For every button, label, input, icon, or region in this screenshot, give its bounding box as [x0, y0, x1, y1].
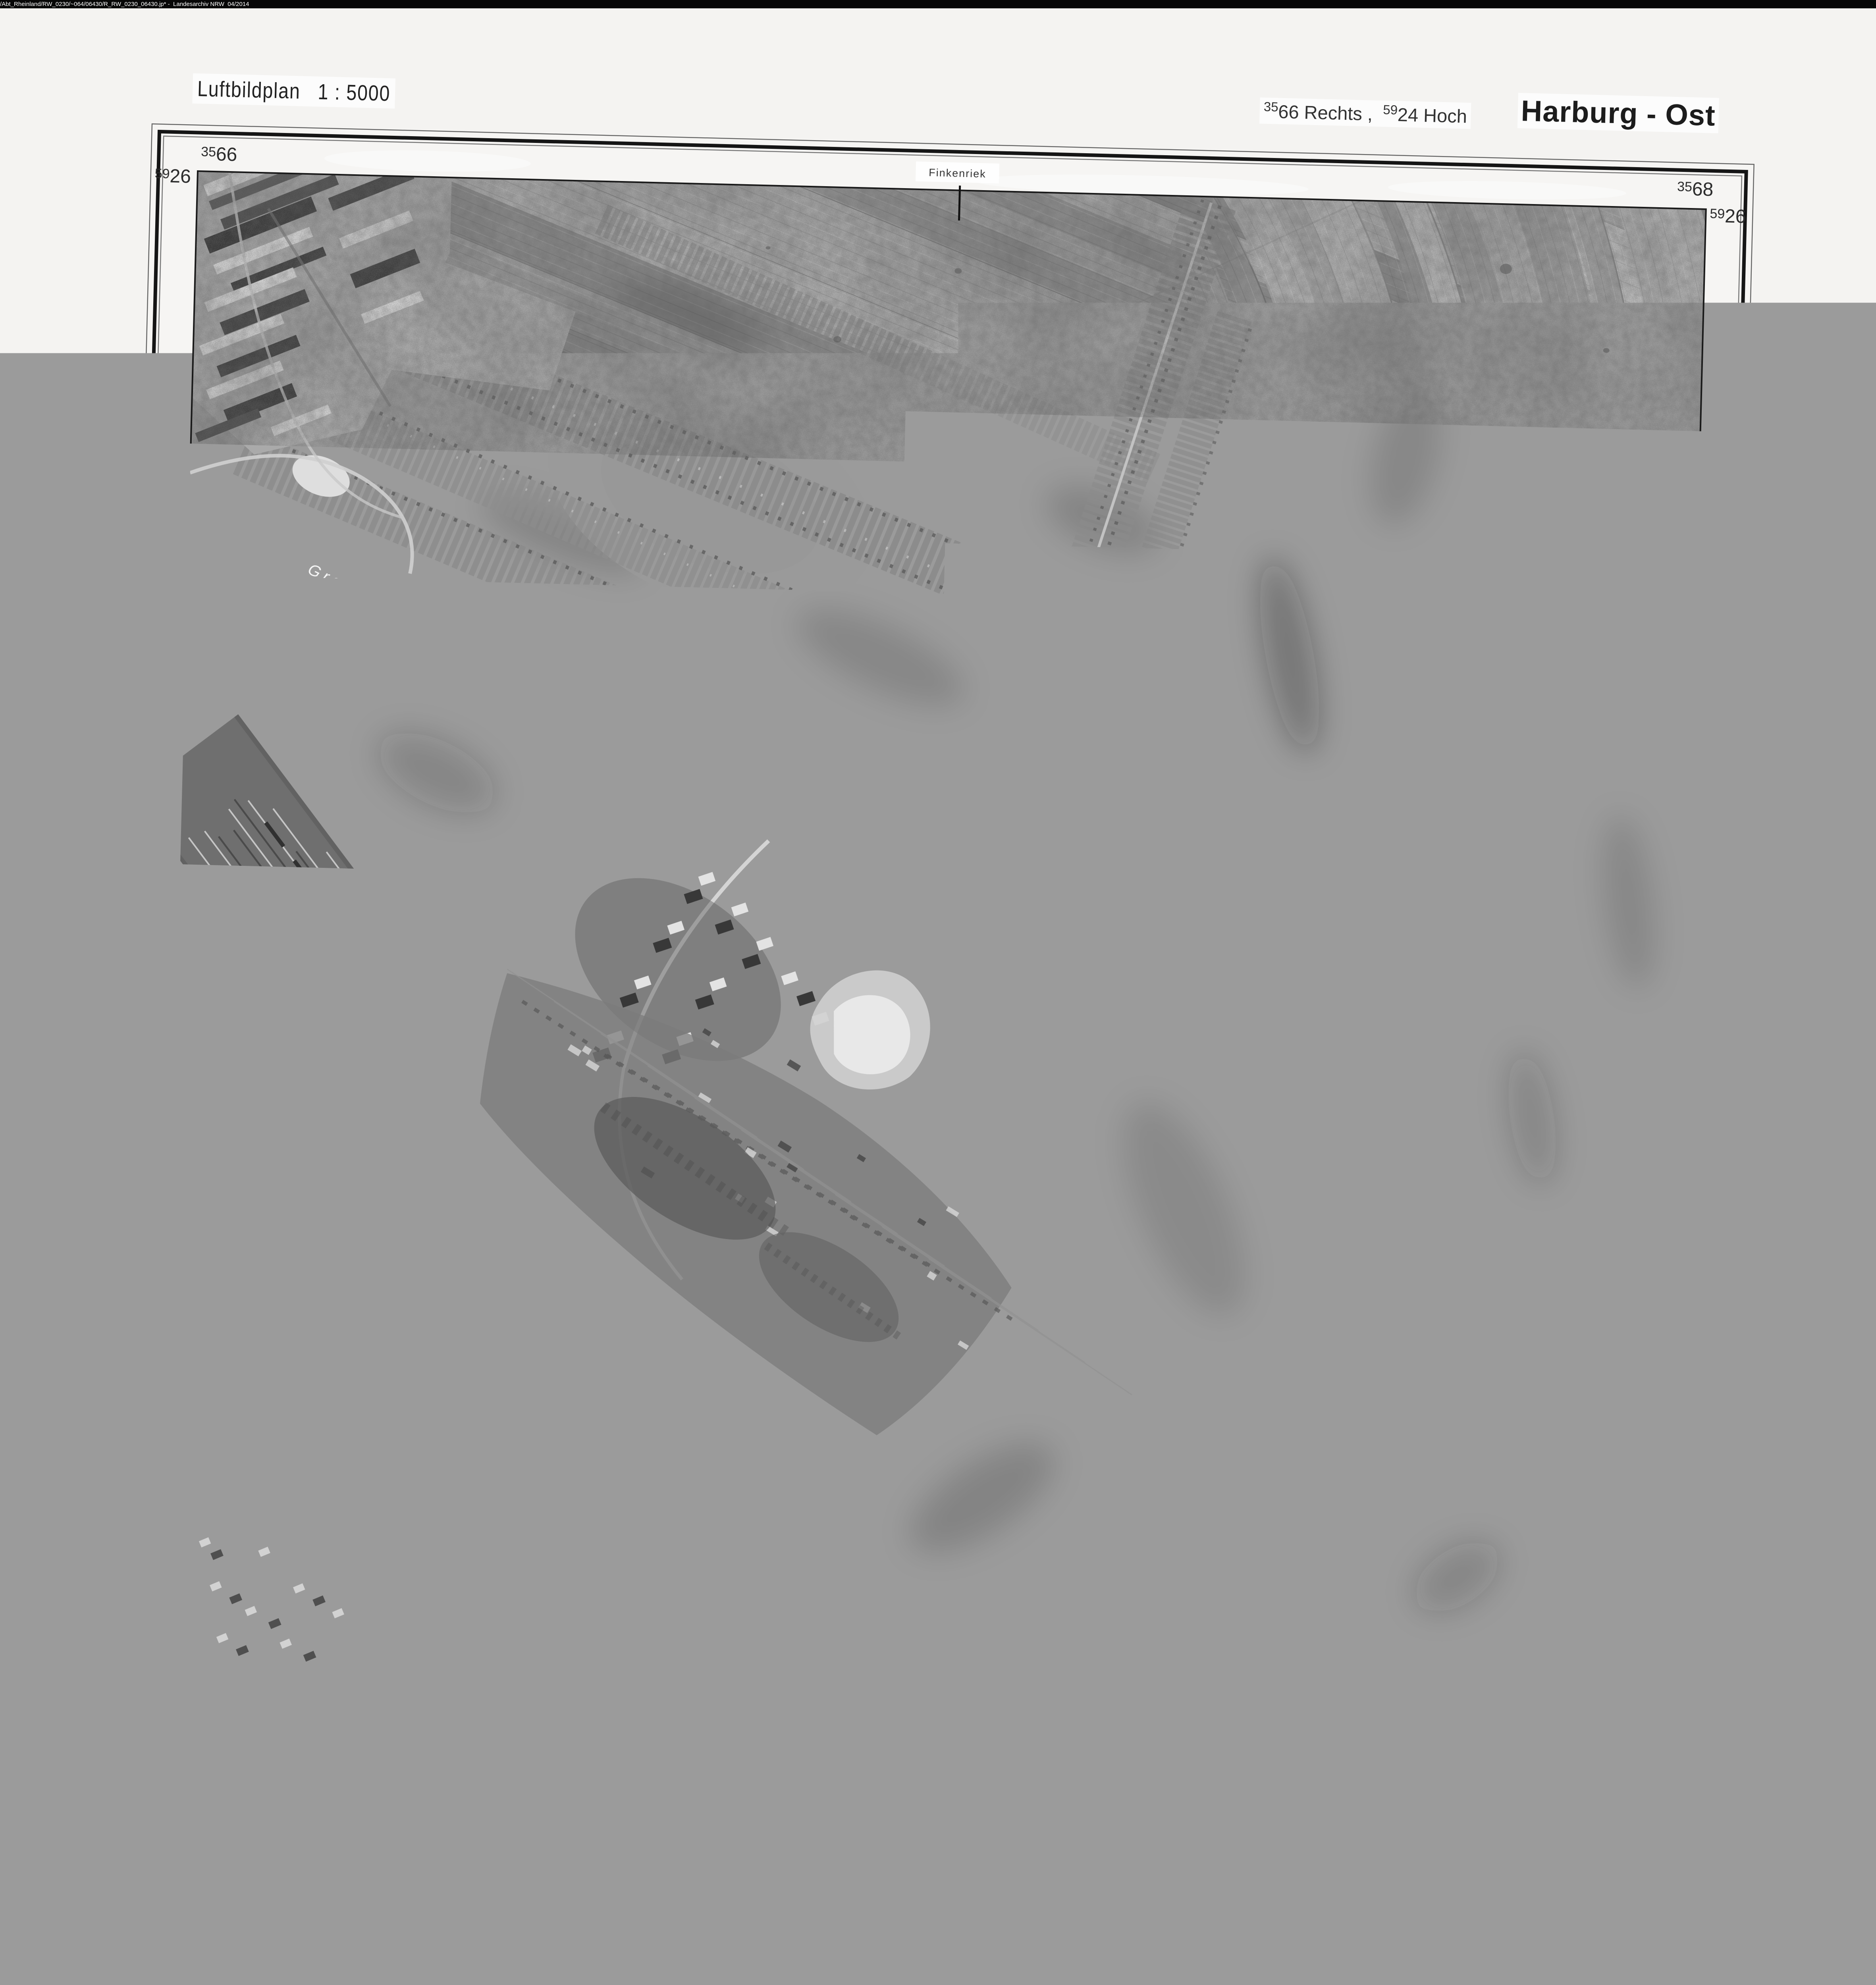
svg-text:5926: 5926: [154, 165, 191, 187]
svg-text:5924: 5924: [125, 1659, 162, 1681]
svg-text:Harburg Mitte: Harburg Mitte: [157, 881, 171, 954]
svg-text:5924: 5924: [1670, 1695, 1706, 1717]
svg-text:400: 400: [1054, 1814, 1078, 1828]
svg-text:3568: 3568: [1643, 1721, 1679, 1742]
svg-text:Finkenriek: Finkenriek: [929, 167, 986, 180]
svg-text:200: 200: [901, 1810, 925, 1824]
svg-text:3566: 3566: [154, 1688, 191, 1710]
svg-text:5926: 5926: [1710, 205, 1747, 227]
svg-text:3566: 3566: [201, 143, 237, 165]
svg-text:100: 100: [825, 1808, 849, 1822]
svg-text:Rönneburg: Rönneburg: [888, 1713, 949, 1726]
svg-text:m: m: [1161, 1817, 1172, 1831]
svg-text:Brammerhagen: Brammerhagen: [1701, 914, 1715, 995]
svg-text:500: 500: [1130, 1816, 1153, 1830]
svg-text:3568: 3568: [1677, 178, 1714, 200]
svg-text:100: 100: [673, 1805, 697, 1818]
svg-text:0: 0: [758, 1807, 766, 1820]
svg-text:300: 300: [978, 1812, 1001, 1826]
